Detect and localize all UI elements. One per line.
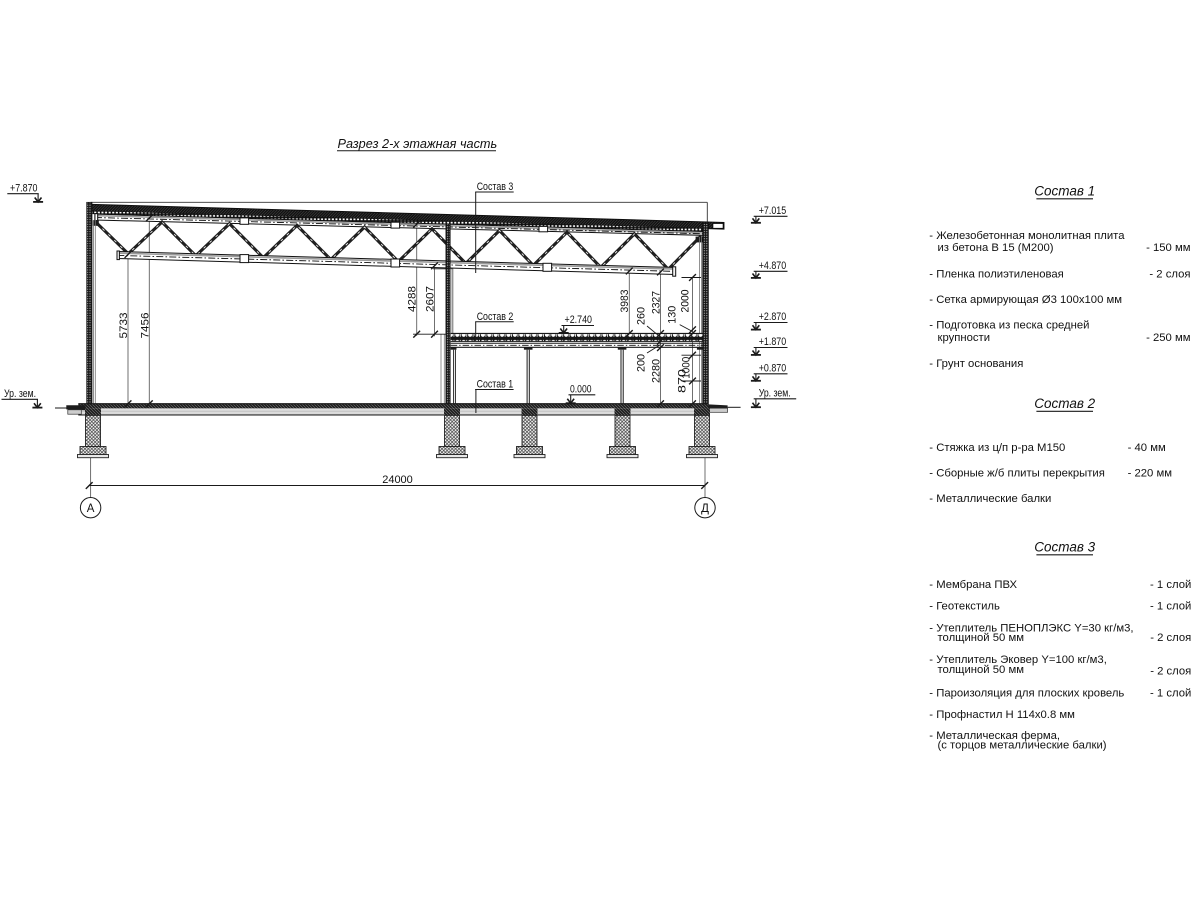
svg-text:- Пароизоляция для плоских кро: - Пароизоляция для плоских кровель <box>929 688 1124 700</box>
svg-text:Разрез 2-х этажная часть: Разрез 2-х этажная часть <box>338 137 498 151</box>
svg-text:260: 260 <box>636 307 648 325</box>
svg-text:2000: 2000 <box>679 290 691 313</box>
svg-text:- Мембрана ПВХ: - Мембрана ПВХ <box>929 579 1017 591</box>
svg-text:200: 200 <box>636 354 648 372</box>
svg-text:- Геотекстиль: - Геотекстиль <box>929 601 1000 613</box>
svg-text:Состав 1: Состав 1 <box>1034 184 1095 199</box>
svg-text:- Подготовка из песка средней: - Подготовка из песка средней <box>929 320 1089 332</box>
svg-text:- Профнастил Н 114х0.8 мм: - Профнастил Н 114х0.8 мм <box>929 709 1075 721</box>
svg-text:- Пленка полиэтиленовая: - Пленка полиэтиленовая <box>929 268 1063 280</box>
svg-text:Ур. зем.: Ур. зем. <box>759 387 791 399</box>
svg-text:- 2 слоя: - 2 слоя <box>1149 268 1190 280</box>
svg-text:5733: 5733 <box>118 313 130 339</box>
svg-text:- 250 мм: - 250 мм <box>1146 332 1190 344</box>
svg-text:Состав 3: Состав 3 <box>1034 540 1095 555</box>
svg-text:- 2 слоя: - 2 слоя <box>1150 632 1191 644</box>
svg-text:- 2 слоя: - 2 слоя <box>1150 666 1191 678</box>
svg-text:- 150 мм: - 150 мм <box>1146 242 1190 254</box>
svg-text:870: 870 <box>676 369 688 393</box>
svg-text:+7.870: +7.870 <box>10 182 38 194</box>
svg-text:7456: 7456 <box>139 313 151 339</box>
svg-text:+4.870: +4.870 <box>759 260 787 272</box>
svg-text:- Сборные ж/б плиты перекрытия: - Сборные ж/б плиты перекрытия <box>929 468 1105 480</box>
svg-text:- Стяжка из ц/п р-ра М150: - Стяжка из ц/п р-ра М150 <box>929 442 1065 454</box>
svg-text:24000: 24000 <box>382 474 413 486</box>
svg-text:- Металлические балки: - Металлические балки <box>929 493 1051 505</box>
svg-text:- 40 мм: - 40 мм <box>1128 442 1166 454</box>
svg-text:из бетона В 15 (М200): из бетона В 15 (М200) <box>938 242 1054 254</box>
svg-text:- Грунт основания: - Грунт основания <box>929 358 1023 370</box>
svg-text:+0.870: +0.870 <box>759 362 787 374</box>
svg-text:0.000: 0.000 <box>570 383 592 395</box>
svg-text:+2.870: +2.870 <box>759 311 787 323</box>
svg-text:- 1 слой: - 1 слой <box>1150 579 1191 591</box>
svg-text:2280: 2280 <box>650 359 662 383</box>
svg-text:Состав 2: Состав 2 <box>477 311 514 323</box>
svg-text:Ур. зем.: Ур. зем. <box>4 388 36 400</box>
svg-text:2327: 2327 <box>650 291 662 314</box>
svg-text:- 1 слой: - 1 слой <box>1150 688 1191 700</box>
svg-text:130: 130 <box>666 306 678 324</box>
svg-text:3983: 3983 <box>619 290 631 313</box>
svg-text:Состав 3: Состав 3 <box>477 181 514 193</box>
svg-text:толщиной 50 мм: толщиной 50 мм <box>938 664 1025 676</box>
svg-text:- 220 мм: - 220 мм <box>1128 468 1172 480</box>
svg-text:+7.015: +7.015 <box>759 205 787 217</box>
svg-text:- Сетка армирующая Ø3 100х100: - Сетка армирующая Ø3 100х100 мм <box>929 294 1122 306</box>
svg-text:толщиной 50 мм: толщиной 50 мм <box>938 632 1025 644</box>
svg-text:Д: Д <box>701 503 709 515</box>
svg-text:- 1 слой: - 1 слой <box>1150 601 1191 613</box>
svg-text:4288: 4288 <box>407 286 419 312</box>
svg-text:Состав 1: Состав 1 <box>477 379 514 391</box>
svg-text:+1.870: +1.870 <box>759 336 787 348</box>
svg-text:- Железобетонная монолитная п: - Железобетонная монолитная плита <box>929 230 1125 242</box>
svg-text:2607: 2607 <box>424 286 436 312</box>
svg-text:крупности: крупности <box>938 332 991 344</box>
svg-text:+2.740: +2.740 <box>565 314 593 326</box>
svg-text:(с торцов металлические балки): (с торцов металлические балки) <box>938 739 1107 751</box>
svg-text:А: А <box>87 503 95 515</box>
svg-text:Состав 2: Состав 2 <box>1034 396 1095 411</box>
